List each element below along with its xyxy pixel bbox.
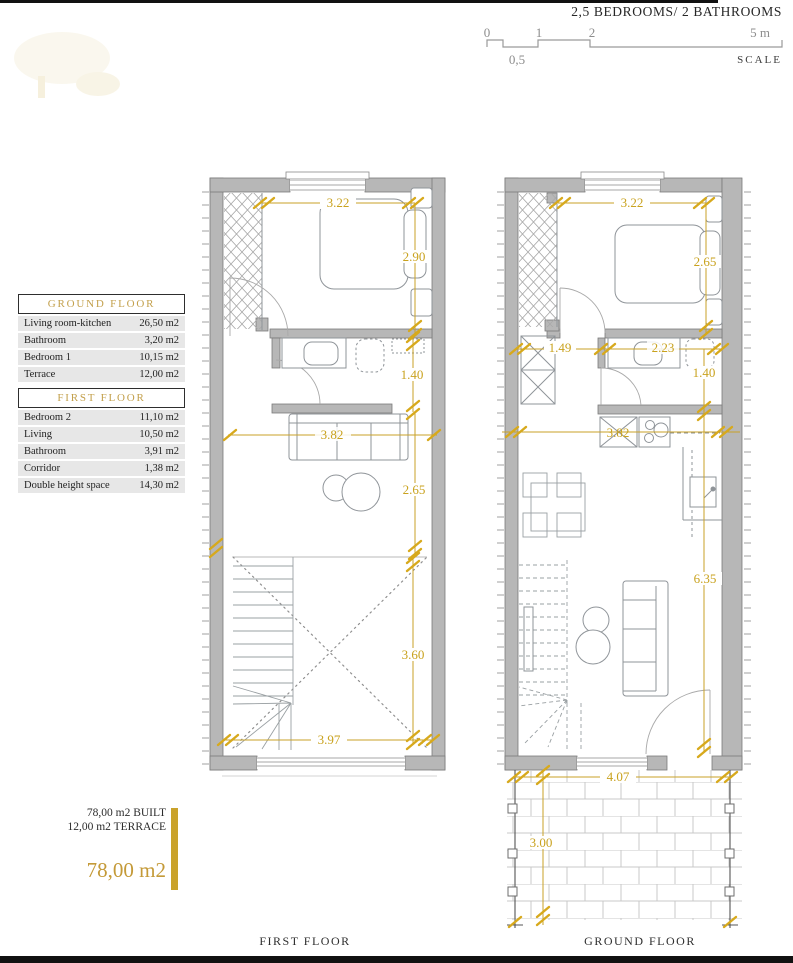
scale-bar: 0 1 2 5 m 0,5 SCALE	[484, 25, 782, 67]
ff-dim-living-width: 3.82	[321, 427, 344, 442]
room-area: 10,15 m2	[139, 352, 179, 363]
room-area: 3,91 m2	[145, 446, 179, 457]
room-area: 1,38 m2	[145, 463, 179, 474]
ff-dim-top-width: 3.22	[327, 195, 350, 210]
room-area: 10,50 m2	[139, 429, 179, 440]
room-label: Terrace	[24, 369, 55, 380]
table-row: Terrace 12,00 m2	[18, 367, 185, 382]
watermark-logo	[14, 32, 120, 98]
gf-dim-top-width: 3.22	[621, 195, 644, 210]
gf-dim-terrace-depth: 3.00	[530, 835, 553, 850]
bottom-rule	[0, 956, 793, 963]
ff-dim-void-depth: 3.60	[402, 647, 425, 662]
scale-5m: 5 m	[750, 25, 770, 40]
table-row: Bathroom 3,20 m2	[18, 333, 185, 348]
gf-dim-living-depth: 6.35	[694, 571, 717, 586]
table-row: Double height space 14,30 m2	[18, 478, 185, 493]
floorplan-sheet: 2,5 BEDROOMS/ 2 BATHROOMS 0 1 2 5 m	[0, 0, 793, 963]
room-area: 26,50 m2	[139, 318, 179, 329]
table-row: Living room-kitchen 26,50 m2	[18, 316, 185, 331]
first-floor-table-title: FIRST FLOOR	[18, 388, 185, 408]
room-label: Living	[24, 429, 52, 440]
gf-dining-set	[523, 473, 585, 537]
scale-0: 0	[484, 25, 491, 40]
room-area: 14,30 m2	[139, 480, 179, 491]
gf-dim-bedroom-depth: 2.65	[694, 254, 717, 269]
area-summary: 78,00 m2 BUILT 12,00 m2 TERRACE 78,00 m2	[20, 806, 166, 883]
room-label: Bedroom 2	[24, 412, 71, 423]
scale-caption: SCALE	[737, 54, 782, 66]
ground-floor-table: GROUND FLOOR Living room-kitchen 26,50 m…	[18, 294, 185, 382]
room-label: Double height space	[24, 480, 110, 491]
room-label: Bathroom	[24, 446, 66, 457]
gf-dim-hall-width: 1.49	[549, 340, 572, 355]
first-floor-plan: 3.22 2.90 1.40 3.82 2.65 3.60 3.97	[202, 172, 445, 776]
scale-05: 0,5	[509, 52, 525, 67]
ff-dim-bathroom-depth: 1.40	[401, 367, 424, 382]
ground-floor-plan: 3.22 2.65 1.49 2.23 1.40 3.82 6.35 4.07 …	[497, 172, 751, 928]
gf-dim-bath-width: 2.23	[652, 340, 675, 355]
ground-floor-caption: GROUND FLOOR	[560, 934, 720, 949]
table-row: Bedroom 1 10,15 m2	[18, 350, 185, 365]
ff-stair-lower	[233, 557, 293, 750]
table-row: Corridor 1,38 m2	[18, 461, 185, 476]
room-area: 3,20 m2	[145, 335, 179, 346]
scale-2: 2	[589, 25, 596, 40]
room-area: 12,00 m2	[139, 369, 179, 380]
summary-accent-bar	[171, 808, 178, 890]
ff-dim-bottom-width: 3.97	[318, 732, 341, 747]
room-label: Bathroom	[24, 335, 66, 346]
room-area: 11,10 m2	[140, 412, 179, 423]
first-floor-caption: FIRST FLOOR	[225, 934, 385, 949]
room-label: Living room-kitchen	[24, 318, 111, 329]
room-label: Corridor	[24, 463, 60, 474]
gf-stairs-dashed	[519, 560, 581, 749]
total-area: 78,00 m2	[20, 858, 166, 883]
ff-dim-living-depth: 2.65	[403, 482, 426, 497]
scale-1: 1	[536, 25, 543, 40]
gf-wardrobe	[519, 193, 557, 327]
built-area-line: 78,00 m2 BUILT	[20, 806, 166, 820]
gf-living-furniture	[524, 581, 668, 696]
room-label: Bedroom 1	[24, 352, 71, 363]
gf-dim-bath-depth: 1.40	[693, 365, 716, 380]
first-floor-table: FIRST FLOOR Bedroom 2 11,10 m2 Living 10…	[18, 388, 185, 493]
ground-floor-table-title: GROUND FLOOR	[18, 294, 185, 314]
gf-dim-kitchen-width: 3.82	[607, 425, 630, 440]
ff-dim-bedroom-depth: 2.90	[403, 249, 426, 264]
gf-dim-terrace-width: 4.07	[607, 769, 630, 784]
table-row: Bedroom 2 11,10 m2	[18, 410, 185, 425]
table-row: Bathroom 3,91 m2	[18, 444, 185, 459]
table-row: Living 10,50 m2	[18, 427, 185, 442]
terrace-area-line: 12,00 m2 TERRACE	[20, 820, 166, 834]
